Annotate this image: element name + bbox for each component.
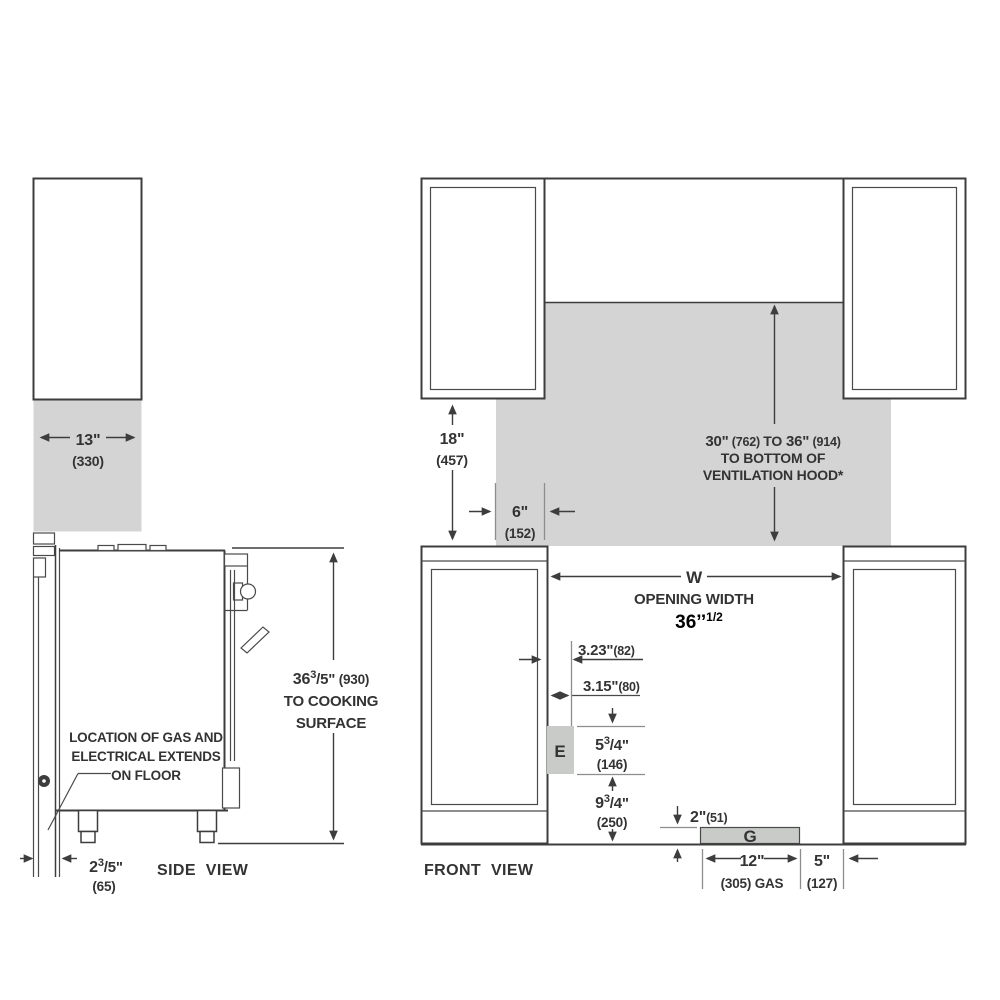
dim-height-line3: SURFACE bbox=[296, 715, 366, 732]
range-side-profile bbox=[55, 545, 269, 843]
dim-wall-gap-value: 23/5" bbox=[89, 857, 123, 876]
dim-height-line2: TO COOKING bbox=[284, 693, 378, 710]
storage-drawer bbox=[223, 768, 240, 808]
burner-grate bbox=[118, 545, 146, 551]
opening-width-symbol: W bbox=[686, 568, 703, 587]
side-view-label: SIDE VIEW bbox=[157, 862, 249, 879]
wall-profile bbox=[34, 533, 60, 877]
dim-wall-gap-mm: (65) bbox=[92, 879, 115, 894]
opening-width-label: OPENING WIDTH bbox=[634, 591, 754, 608]
dim-depth-mm: (330) bbox=[72, 453, 104, 469]
note-line1: LOCATION OF GAS AND bbox=[69, 730, 223, 745]
installation-diagram: 13" (330) bbox=[0, 0, 1000, 1000]
upper-cabinet-right-panel bbox=[853, 188, 957, 390]
side-view: 13" (330) bbox=[20, 179, 378, 895]
door-handle bbox=[241, 627, 269, 653]
gas-electrical-marker-center bbox=[42, 779, 46, 783]
dim-575-value: 53/4" bbox=[595, 735, 629, 754]
control-panel-bracket bbox=[225, 554, 248, 566]
dim-5-value: 5" bbox=[814, 853, 830, 870]
dim-575-mm: (146) bbox=[597, 757, 628, 772]
burner-grate bbox=[98, 546, 114, 551]
dim-975-mm: (250) bbox=[597, 815, 628, 830]
electrical-box-label: E bbox=[554, 742, 565, 761]
dim-2-value: 2"(51) bbox=[690, 809, 728, 826]
hood-clearance-shade bbox=[496, 302, 891, 546]
installation-diagram-page: 13" (330) bbox=[0, 0, 1000, 1000]
dim-975-value: 93/4" bbox=[595, 793, 629, 812]
dim-6-mm: (152) bbox=[505, 526, 536, 541]
dim-12-mm: (305) GAS bbox=[721, 876, 784, 891]
dim-hood-value: 30" (762) TO 36" (914) bbox=[705, 433, 840, 450]
dim-hood-line3: VENTILATION HOOD* bbox=[703, 467, 844, 483]
dim-depth-value: 13" bbox=[76, 432, 101, 449]
dim-hood-line2: TO BOTTOM OF bbox=[721, 450, 826, 466]
control-knob bbox=[241, 584, 256, 599]
front-view: 18" (457) 6" (152) 30" (762) TO 36" (914… bbox=[421, 179, 966, 892]
note-line3: ON FLOOR bbox=[111, 768, 181, 783]
dim-6-value: 6" bbox=[512, 504, 528, 521]
dim-18-mm: (457) bbox=[436, 452, 468, 468]
base-cabinet-right bbox=[844, 547, 966, 844]
base-cabinet-left bbox=[422, 547, 548, 844]
note-line2: ELECTRICAL EXTENDS bbox=[71, 749, 220, 764]
opening-width-annotation: 36’’1/2 bbox=[675, 610, 723, 633]
dim-5-mm: (127) bbox=[807, 876, 838, 891]
range-legs bbox=[79, 811, 217, 843]
upper-cabinet-left-panel bbox=[431, 188, 536, 390]
dim-18-value: 18" bbox=[440, 431, 465, 448]
burner-grate bbox=[150, 546, 166, 551]
dim-12-value: 12" bbox=[740, 853, 765, 870]
side-tall-cabinet bbox=[34, 179, 142, 400]
front-view-label: FRONT VIEW bbox=[424, 862, 534, 879]
dim-323-value: 3.23"(82) bbox=[578, 642, 635, 659]
gas-box-label: G bbox=[743, 827, 756, 846]
dim-height-value: 363/5" (930) bbox=[293, 669, 369, 688]
dim-315-value: 3.15"(80) bbox=[583, 678, 640, 695]
